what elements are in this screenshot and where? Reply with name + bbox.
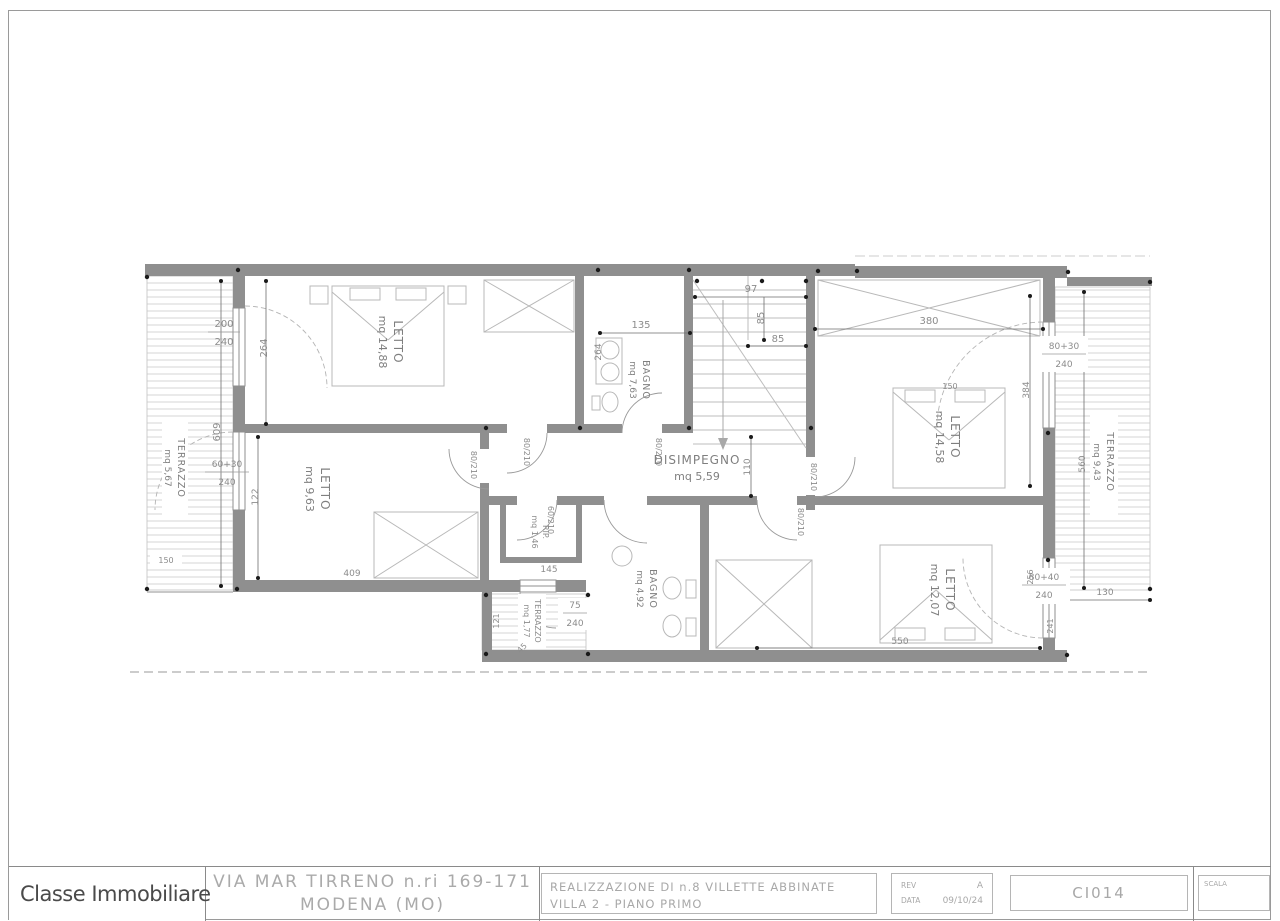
dim-win-s-height: 240 [566, 619, 583, 629]
dim-win-w2-width: 60+30 [212, 460, 243, 470]
rev-label: REV [901, 881, 916, 891]
room-area-letto-left: mq 9,63 [303, 466, 316, 512]
dim-380: 380 [919, 316, 938, 327]
dim-241: 241 [1046, 618, 1055, 633]
room-area-disimpegno: mq 5,59 [674, 470, 720, 483]
door-size-letto1: 80/210 [522, 438, 531, 466]
revision-box: REV A DATA 09/10/24 [891, 873, 993, 914]
floor-plan-drawing: LETTO mq 14,88 BAGNO mq 7,63 LETTO mq 14… [0, 0, 1280, 866]
logo: Classe Immobiliare [9, 867, 206, 921]
dim-97: 97 [745, 284, 758, 295]
room-area-terrazzo-right: mq 9,43 [1091, 443, 1101, 480]
room-label-disimpegno: DISIMPEGNO [654, 453, 741, 467]
scale-label: SCALA [1204, 880, 1227, 888]
room-label-terrazzo-left: TERRAZZO [175, 437, 186, 498]
drawing-code-box: CI014 [1010, 875, 1188, 911]
dim-384: 384 [1022, 381, 1032, 398]
scale-box: SCALA [1198, 875, 1270, 911]
room-area-letto1: mq 14,88 [376, 316, 389, 369]
room-label-letto-left: LETTO [318, 467, 332, 510]
dim-85-horiz: 85 [772, 334, 785, 345]
project-line2: VILLA 2 - PIANO PRIMO [550, 896, 868, 913]
boundary-lines [130, 256, 1152, 672]
dim-win-w2-height: 240 [218, 478, 235, 488]
address-line1: VIA MAR TIRRENO n.ri 169-171 [206, 871, 539, 894]
room-label-terrazzo-right: TERRAZZO [1104, 431, 1115, 492]
dim-150-left: 150 [158, 556, 173, 565]
door-size-bagno1: 80/210 [654, 438, 663, 466]
address-block: VIA MAR TIRRENO n.ri 169-171 MODENA (MO) [206, 867, 540, 921]
room-area-bagno2: mq 4,92 [634, 570, 644, 607]
dim-85-vert: 85 [756, 312, 767, 325]
room-label-bagno2: BAGNO [647, 569, 658, 609]
room-area-terrazzo-left: mq 5,67 [162, 449, 172, 486]
door-size-rip: 60/210 [546, 506, 555, 534]
rev-value: A [977, 881, 983, 891]
door-size-letto2: 80/210 [809, 463, 818, 491]
room-area-bagno1: mq 7,63 [627, 361, 637, 398]
dim-121: 121 [492, 613, 501, 628]
room-label-bagno1: BAGNO [640, 360, 651, 400]
room-area-terrazzo-bottom: mq 1,77 [522, 604, 531, 637]
dim-256: 256 [1026, 569, 1035, 584]
title-block: Classe Immobiliare VIA MAR TIRRENO n.ri … [9, 866, 1271, 921]
room-area-letto2: mq 14,58 [933, 411, 946, 464]
room-label-terrazzo-bottom: TERRAZZO [533, 598, 542, 642]
room-label-letto2: LETTO [948, 415, 962, 458]
dim-560: 560 [1078, 455, 1088, 472]
dim-550: 550 [891, 637, 908, 647]
dim-110: 110 [743, 458, 753, 475]
project-line1: REALIZZAZIONE DI n.8 VILLETTE ABBINATE [550, 879, 868, 896]
dim-win-nw-height: 240 [214, 337, 233, 348]
dim-win-e1-width: 80+30 [1049, 342, 1080, 352]
room-area-letto4: mq 12,07 [928, 564, 941, 617]
dim-145: 145 [540, 565, 557, 575]
dim-win-nw-width: 200 [214, 319, 233, 330]
room-labels: LETTO mq 14,88 BAGNO mq 7,63 LETTO mq 14… [162, 316, 1115, 643]
door-size-letto4: 80/210 [796, 508, 805, 536]
date-value: 09/10/24 [943, 896, 983, 906]
dim-win-e2-height: 240 [1035, 591, 1052, 601]
dim-409: 409 [343, 569, 360, 579]
drawing-code: CI014 [1072, 884, 1126, 902]
dim-130: 130 [1096, 588, 1113, 598]
staircase [693, 276, 806, 450]
project-description-box: REALIZZAZIONE DI n.8 VILLETTE ABBINATE V… [541, 873, 877, 914]
dim-264-left: 264 [259, 338, 270, 357]
logo-text: Classe Immobiliare [20, 882, 211, 906]
dim-150-bed: 150 [942, 382, 957, 391]
dim-win-s-width: 75 [569, 601, 580, 611]
room-label-letto1: LETTO [391, 320, 405, 363]
address-line2: MODENA (MO) [206, 894, 539, 917]
dim-135: 135 [631, 320, 650, 331]
date-label: DATA [901, 896, 920, 906]
door-size-letto-left: 80/210 [469, 451, 478, 479]
room-area-rip: mq 1,46 [530, 515, 539, 548]
dim-609: 609 [212, 422, 223, 441]
dim-122: 122 [251, 488, 261, 505]
dim-264-bagno: 264 [594, 343, 604, 360]
room-label-letto4: LETTO [943, 568, 957, 611]
dim-win-e1-height: 240 [1055, 360, 1072, 370]
title-block-divider [1193, 867, 1194, 921]
